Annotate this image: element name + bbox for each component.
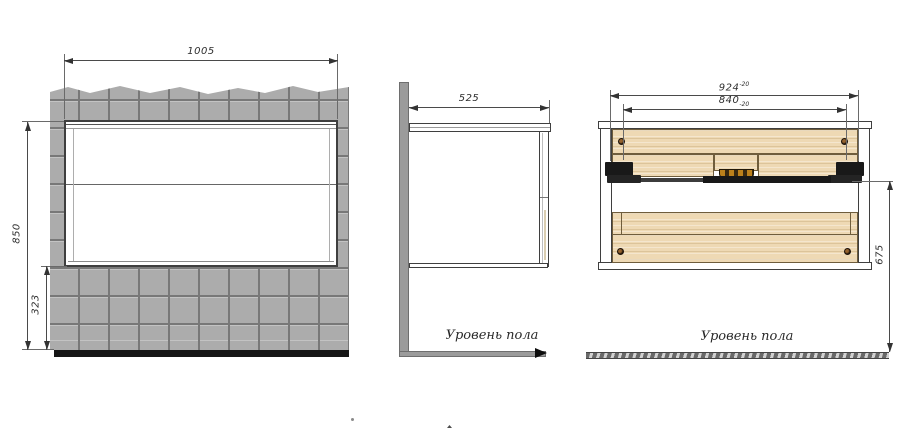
dim-1005-label: 1005 bbox=[161, 46, 241, 57]
baseboard bbox=[54, 350, 349, 357]
dim-924-tolerance: -20 bbox=[739, 81, 749, 88]
floor-level-label-side: Уровень пола bbox=[437, 328, 547, 343]
screw-bottom-right bbox=[844, 248, 851, 255]
side-panel-joint bbox=[544, 210, 546, 260]
dim-1005-arrow-right bbox=[329, 58, 338, 64]
niche-inner-right-line bbox=[329, 129, 330, 262]
cabinet-right-side bbox=[858, 128, 870, 264]
dim-840-line bbox=[623, 109, 846, 110]
dim-840-arrow-right bbox=[837, 107, 846, 113]
cabinet-bottom-rim bbox=[598, 262, 872, 270]
dim-323-arrow-bottom bbox=[44, 341, 50, 350]
dim-850-line bbox=[27, 122, 28, 350]
lower-strip-joint-right bbox=[850, 213, 851, 234]
floor-level-label-front: Уровень пола bbox=[692, 329, 802, 344]
lower-panel bbox=[612, 234, 858, 263]
dim-675-arrow-top bbox=[887, 181, 893, 190]
drawing-canvas: 1005 850 323 525 Уровень bbox=[0, 0, 900, 429]
dim-924-ext-left bbox=[610, 90, 611, 161]
dim-924-label: 924-20 bbox=[699, 81, 769, 93]
drawer-split-line bbox=[66, 184, 336, 185]
upper-back-panel bbox=[612, 129, 858, 154]
niche-opening bbox=[64, 120, 338, 267]
countertop-underside-line bbox=[66, 128, 336, 129]
floor-end-arrow bbox=[535, 348, 547, 358]
countertop-edge-line bbox=[66, 124, 336, 125]
countertop-side-innerline bbox=[410, 127, 550, 128]
dim-840-ext-right bbox=[846, 104, 847, 160]
dim-840-tolerance: -20 bbox=[739, 101, 749, 108]
dim-675-label: 675 bbox=[875, 235, 886, 275]
dim-924-ext-right bbox=[858, 90, 859, 161]
side-panel-seam bbox=[540, 197, 548, 198]
cabinet-bottom-line bbox=[68, 261, 334, 262]
dim-675-line bbox=[889, 181, 890, 352]
dim-525-arrow-right bbox=[540, 105, 549, 111]
drawer-slide-right bbox=[836, 162, 864, 176]
dim-525-label: 525 bbox=[439, 93, 499, 104]
drawer-slide-left bbox=[605, 162, 633, 176]
dim-850-arrow-top bbox=[25, 122, 31, 131]
dim-675-arrow-bottom bbox=[887, 343, 893, 352]
slide-rail-short bbox=[641, 178, 703, 182]
cabinet-bottom-side bbox=[409, 263, 548, 268]
screw-bottom-left bbox=[617, 248, 624, 255]
dim-840-label: 840-20 bbox=[699, 95, 769, 108]
wall-section bbox=[399, 82, 409, 357]
dim-1005-line bbox=[64, 60, 338, 61]
dim-924-arrow-right bbox=[849, 93, 858, 99]
drawer-slide-left-foot bbox=[607, 175, 641, 183]
dim-1005-arrow-left bbox=[64, 58, 73, 64]
page-mark-tick bbox=[447, 425, 452, 428]
dim-525-ext-right bbox=[549, 100, 550, 123]
lower-strip-joint-left bbox=[621, 213, 622, 234]
floor-section bbox=[399, 351, 546, 357]
dim-840-arrow-left bbox=[623, 107, 632, 113]
floor-hatched bbox=[586, 352, 889, 359]
dim-323-arrow-top bbox=[44, 266, 50, 275]
dim-525-arrow-left bbox=[409, 105, 418, 111]
page-mark-dot bbox=[351, 418, 354, 421]
slide-rail-long bbox=[703, 176, 831, 183]
side-panel-innerline bbox=[542, 133, 543, 265]
dim-850-arrow-bottom bbox=[25, 341, 31, 350]
lower-front-strip bbox=[612, 212, 858, 235]
dim-323-label: 323 bbox=[31, 285, 42, 325]
dim-323-line bbox=[46, 266, 47, 350]
dim-525-line bbox=[409, 107, 549, 108]
dim-850-label: 850 bbox=[12, 214, 23, 254]
dim-924-arrow-left bbox=[610, 93, 619, 99]
niche-inner-left-line bbox=[73, 129, 74, 262]
cabinet-top-rim bbox=[598, 121, 872, 129]
